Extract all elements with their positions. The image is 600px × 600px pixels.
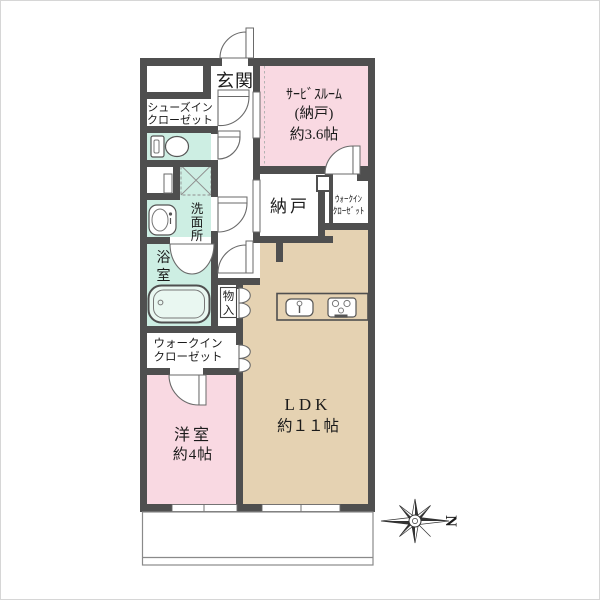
- service-room-sliding-door: [253, 92, 260, 138]
- genkan-label: 玄関: [216, 71, 254, 91]
- service-room-label-3: 約3.6帖: [290, 126, 339, 143]
- pipe-space-box: [317, 176, 330, 191]
- alcove-door: [164, 174, 172, 193]
- toilet-icon: [151, 136, 189, 157]
- svg-text:室: 室: [157, 267, 171, 284]
- wic-right-label-2: ｸﾛｰｾﾞｯﾄ: [333, 206, 365, 216]
- yoshitsu-label-1: 洋室: [174, 426, 212, 444]
- wic-right-label-1: ｳｫｰｸｲﾝ: [335, 194, 363, 204]
- wic-left-label-2: クローゼット: [154, 351, 223, 364]
- svg-text:入: 入: [223, 304, 235, 317]
- svg-text:所: 所: [191, 229, 204, 243]
- floor-plan-image: N 玄関 シューズイン クローゼット ｻｰﾋﾞｽﾙｰﾑ (納戸) 約3.6帖 納…: [0, 0, 600, 600]
- window-yoshitsu: [172, 505, 237, 512]
- washer-pan-icon: [181, 166, 211, 196]
- shoes-closet-label-2: クローゼット: [147, 114, 213, 127]
- compass-north-label: N: [442, 515, 459, 527]
- ldk-label-2: 約１１帖: [277, 417, 339, 435]
- ldk-label-1: LDK: [285, 395, 332, 414]
- service-room-label-1: ｻｰﾋﾞｽﾙｰﾑ: [286, 87, 342, 103]
- service-room-label-2: (納戸): [295, 105, 334, 122]
- kitchen-sink-icon: [286, 299, 313, 316]
- shoes-closet-label-1: シューズイン: [147, 100, 212, 114]
- svg-text:洗: 洗: [191, 202, 204, 216]
- wic-left-label-1: ウォークイン: [154, 337, 223, 350]
- balcony: [143, 512, 374, 565]
- nando-sliding-door: [253, 180, 260, 232]
- yoshitsu-label-2: 約4帖: [173, 446, 214, 463]
- bathtub-icon: [149, 286, 210, 323]
- stove-icon: [328, 298, 356, 318]
- washbasin-icon: [149, 205, 176, 235]
- svg-text:物: 物: [223, 289, 235, 303]
- floor-plan-svg: N 玄関 シューズイン クローゼット ｻｰﾋﾞｽﾙｰﾑ (納戸) 約3.6帖 納…: [0, 0, 600, 600]
- nando-label: 納戸: [270, 197, 310, 216]
- svg-text:浴: 浴: [157, 250, 171, 266]
- svg-text:面: 面: [191, 216, 204, 230]
- senmenjo-label: 洗 面 所: [191, 202, 204, 243]
